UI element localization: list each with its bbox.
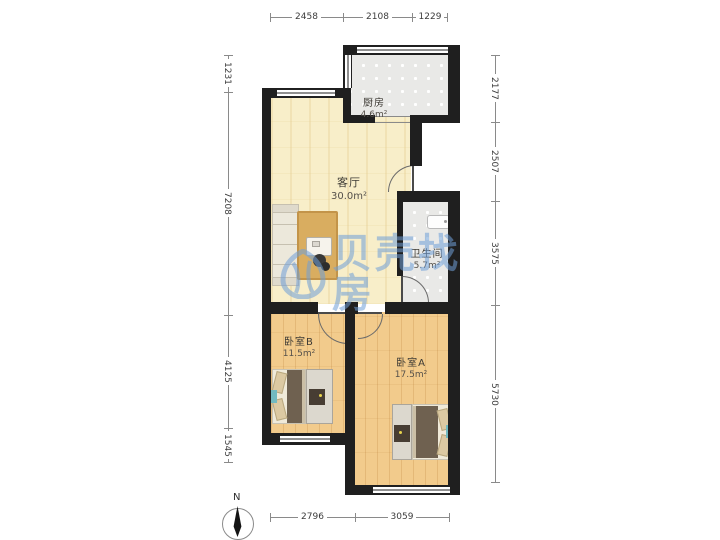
room-label-bedroom-b: 卧室B 11.5m² [283,333,315,359]
bed-runner-teal [271,390,277,403]
dim-label: 2108 [343,12,412,22]
bedroom-b-door-leaf [318,312,347,314]
dim-label: 2458 [270,12,343,22]
dim-label: 1231 [222,48,232,98]
room-area: 17.5m² [395,370,427,380]
wall-segment [385,302,448,314]
room-label-bedroom-a: 卧室A 17.5m² [395,354,427,380]
room-area: 5.7m² [411,261,444,271]
bathroom-door-leaf [401,276,403,302]
bed-blanket [413,406,438,458]
dim-label: 1229 [412,12,448,22]
plant-pot [321,262,330,271]
dim-label: 3575 [489,228,499,278]
wall-segment [402,191,448,202]
dim-label: 3059 [355,512,449,522]
dim-label: 2507 [489,136,499,186]
lamp-dot [319,394,322,397]
dim-label: 7208 [222,178,232,228]
room-area: 30.0m² [331,191,367,202]
dim-tick [491,55,500,56]
floorplan-canvas: 厨房 4.6m² 客厅 30.0m² 卫生间 5.7m² 卧室B 11.5m² … [0,0,720,540]
room-label-kitchen: 厨房 4.6m² [361,94,388,120]
dim-label: 2796 [270,512,355,522]
wall-segment [410,123,422,166]
compass-north-label: N [233,492,240,503]
dim-tick [491,122,500,123]
dim-tick [449,513,450,522]
room-name: 客厅 [331,174,367,190]
lamp-dot [399,431,402,434]
dim-tick [491,201,500,202]
table-item [312,241,320,247]
dim-tick [491,305,500,306]
dim-label: 1545 [222,420,232,470]
window [344,55,352,88]
tv-panel [394,425,410,442]
bedroom-a-floor [353,312,450,487]
dim-tick [491,482,500,483]
window [277,89,335,97]
wall-segment [262,302,318,314]
wall-segment [448,45,460,123]
room-name: 卫生间 [411,245,444,260]
window [280,435,330,443]
wall-segment [448,191,460,495]
bedroom-a-door-leaf [358,312,382,314]
dim-label: 5730 [489,369,499,419]
room-label-bathroom: 卫生间 5.7m² [411,245,444,271]
wall-segment [345,302,355,495]
sofa-armrest [272,204,299,213]
faucet-dot [444,220,447,223]
room-name: 厨房 [361,94,388,109]
sofa [272,204,299,286]
room-name: 卧室B [283,333,315,348]
window [373,486,450,494]
dim-label: 2177 [489,63,499,113]
dim-line-left [228,55,229,463]
sofa-armrest [272,277,299,286]
window [357,46,448,54]
bed-blanket [287,370,305,423]
room-label-living: 客厅 30.0m² [331,174,367,202]
wall-segment [410,115,460,123]
wall-segment [397,191,403,276]
dim-tick [224,315,233,316]
room-area: 11.5m² [283,349,315,359]
room-area: 4.6m² [361,110,388,120]
room-name: 卧室A [395,354,427,369]
entry-door-leaf [412,165,414,191]
wall-segment [262,88,271,445]
tv-panel [309,389,325,405]
dim-label: 4125 [222,346,232,396]
